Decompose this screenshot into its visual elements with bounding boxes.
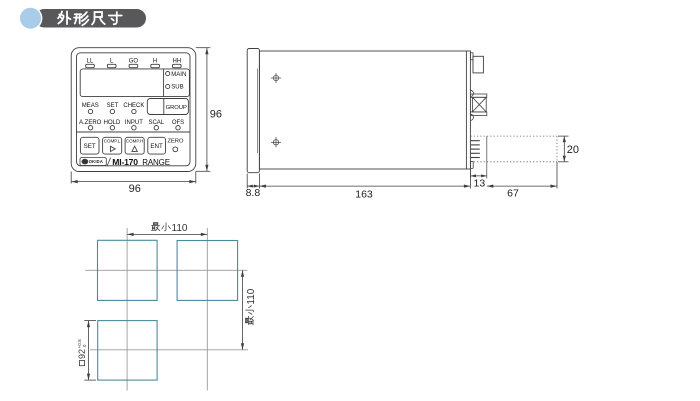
svg-text:LL: LL — [87, 58, 94, 64]
svg-text:96: 96 — [210, 109, 222, 121]
svg-text:110: 110 — [246, 288, 257, 304]
svg-text:96: 96 — [129, 183, 141, 195]
svg-text:SET: SET — [107, 103, 119, 109]
svg-text:20: 20 — [567, 144, 579, 156]
svg-text:OKIDA: OKIDA — [89, 159, 103, 164]
svg-text:13: 13 — [474, 178, 486, 190]
svg-text:HH: HH — [172, 58, 181, 64]
svg-text:MEAS: MEAS — [82, 103, 99, 109]
svg-text:COMP.H: COMP.H — [126, 139, 143, 144]
svg-text:8.8: 8.8 — [246, 187, 261, 199]
svg-text:GROUP: GROUP — [166, 105, 187, 111]
svg-text:CHECK: CHECK — [123, 103, 144, 109]
svg-text:SUB: SUB — [171, 85, 183, 91]
svg-text:92: 92 — [77, 349, 87, 359]
svg-text:163: 163 — [355, 189, 373, 201]
svg-text:MI-170: MI-170 — [112, 157, 138, 167]
svg-text:MAIN: MAIN — [171, 72, 186, 78]
svg-text:ENT: ENT — [150, 143, 163, 150]
svg-text:COMP.L: COMP.L — [104, 139, 121, 144]
svg-text:H: H — [153, 58, 157, 64]
svg-text:ZERO: ZERO — [167, 138, 184, 144]
svg-text:RANGE: RANGE — [142, 158, 170, 167]
svg-text:GO: GO — [129, 58, 139, 64]
svg-text:SET: SET — [84, 143, 96, 150]
svg-text:+0.8: +0.8 — [77, 339, 82, 349]
svg-text:110: 110 — [172, 223, 188, 234]
svg-text:0: 0 — [82, 344, 87, 347]
svg-text:67: 67 — [507, 188, 519, 200]
